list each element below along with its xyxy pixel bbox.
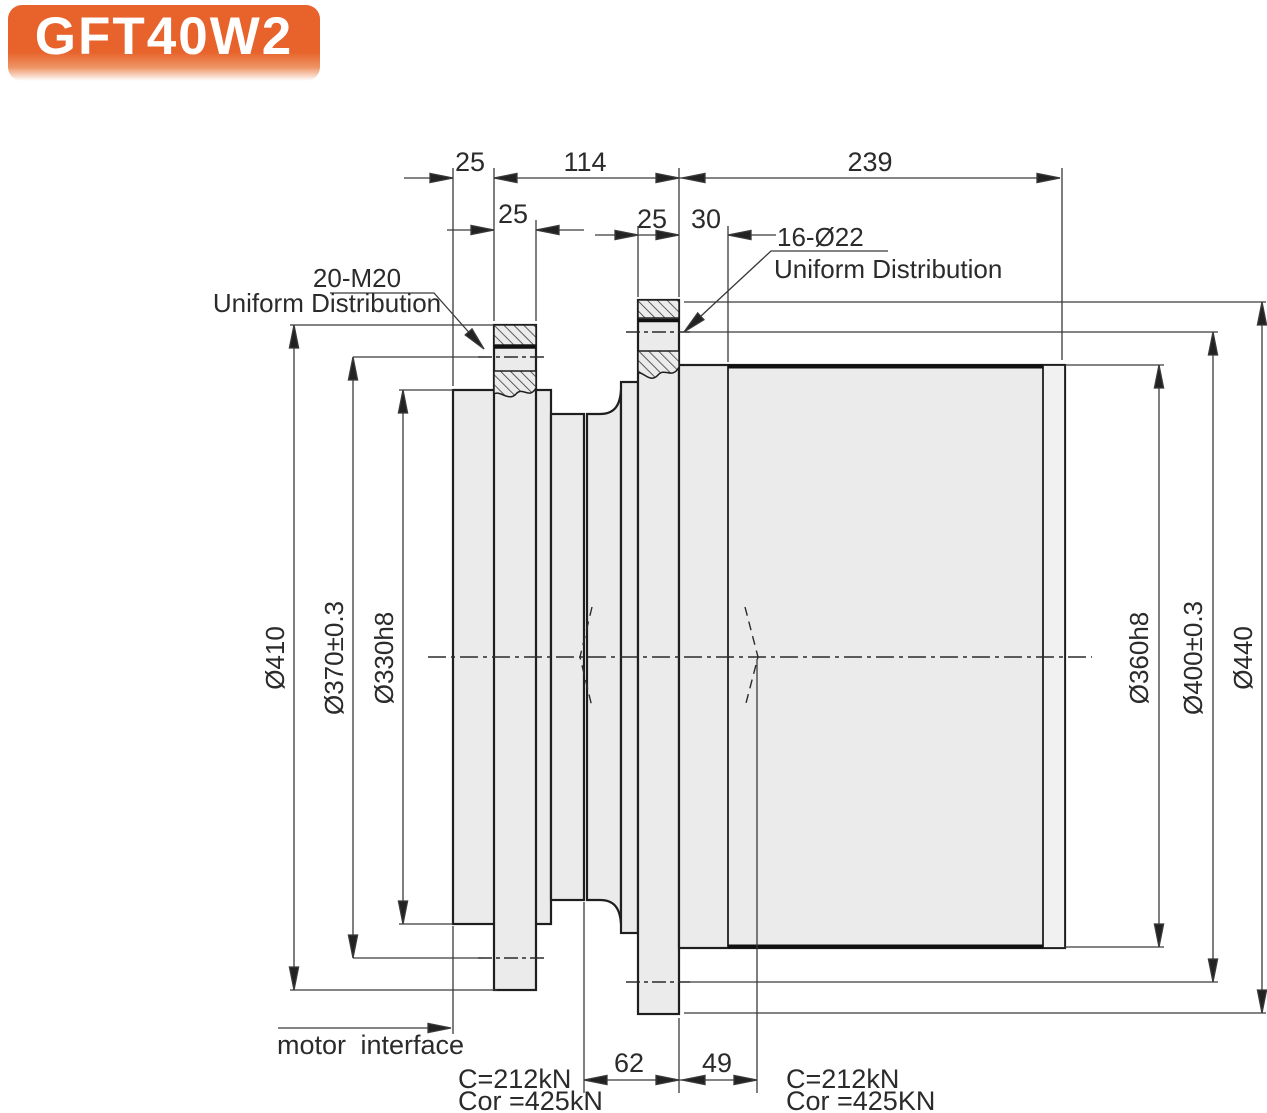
arrow: [656, 1075, 679, 1084]
arrow: [1037, 173, 1060, 182]
arrow: [728, 230, 751, 239]
dia-label-370: Ø370±0.3: [319, 601, 349, 715]
callout-left-subtitle: Uniform Distribution: [213, 288, 441, 318]
left-load-rating-cor: Cor =425kN: [458, 1086, 603, 1113]
arrow: [348, 935, 357, 958]
arrow: [584, 1075, 607, 1084]
left-flange-hatch-inner: [494, 371, 536, 397]
callout-texts: 20-M20 Uniform Distribution 16-Ø22 Unifo…: [213, 222, 1002, 318]
right-flange-hatch-outer: [638, 300, 679, 318]
arrow: [289, 325, 298, 348]
dia-label-400: Ø400±0.3: [1178, 601, 1208, 715]
arrow: [430, 173, 453, 182]
dim-top-114: 114: [563, 147, 606, 177]
dim-top-25b: 25: [498, 199, 528, 229]
arrow: [615, 230, 638, 239]
motor-interface-label: motor interface: [277, 1030, 464, 1060]
arrow: [682, 173, 705, 182]
arrow: [536, 225, 559, 234]
callout-right-title: 16-Ø22: [777, 222, 864, 252]
dia-label-440: Ø440: [1228, 626, 1258, 690]
arrow: [1257, 990, 1266, 1013]
arrow: [734, 1075, 757, 1084]
arrow: [494, 173, 517, 182]
gearbox-technical-drawing: 25 114 239 25 25 30 62 49 Ø410 Ø370±0.3 …: [0, 0, 1267, 1113]
dim-bottom-62: 62: [614, 1048, 644, 1078]
arrow: [465, 329, 487, 352]
model-badge: GFT40W2: [8, 5, 320, 81]
arrow: [398, 901, 407, 924]
annotation-texts: motor interface C=212kN Cor =425kN C=212…: [277, 1030, 935, 1113]
arrow: [1154, 365, 1163, 388]
arrow: [1257, 302, 1266, 325]
arrow: [289, 967, 298, 990]
drawing-page: 25 114 239 25 25 30 62 49 Ø410 Ø370±0.3 …: [0, 0, 1267, 1113]
dim-top-25c: 25: [637, 204, 667, 234]
dim-top-25a: 25: [455, 147, 485, 177]
dim-top-239: 239: [847, 147, 892, 177]
model-badge-label: GFT40W2: [35, 5, 293, 69]
arrow: [471, 225, 494, 234]
dia-label-330: Ø330h8: [369, 612, 399, 705]
arrow: [1208, 332, 1217, 355]
arrow: [398, 390, 407, 413]
dia-label-360: Ø360h8: [1124, 612, 1154, 705]
arrow: [1154, 924, 1163, 947]
arrow: [348, 357, 357, 380]
left-flange-hatch-outer: [494, 325, 536, 345]
dia-label-410: Ø410: [260, 626, 290, 690]
right-load-rating-cor: Cor =425KN: [786, 1086, 935, 1113]
dim-bottom-49: 49: [702, 1048, 732, 1078]
dim-top-30: 30: [691, 204, 721, 234]
arrow: [656, 173, 679, 182]
callout-right-subtitle: Uniform Distribution: [774, 254, 1002, 284]
arrow: [1208, 959, 1217, 982]
